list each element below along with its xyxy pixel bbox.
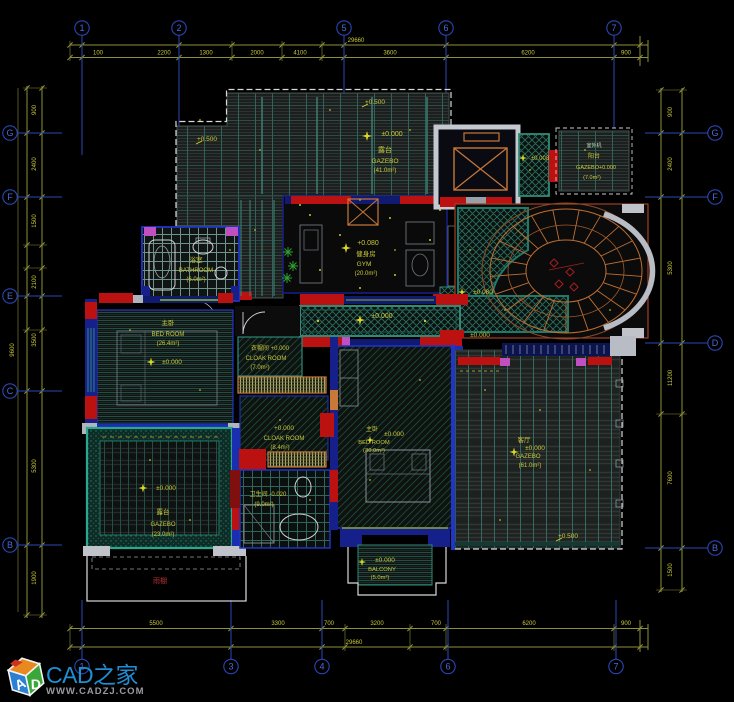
svg-text:CAD之家: CAD之家 [46,662,139,688]
svg-text:BATHROOM: BATHROOM [179,268,213,274]
svg-text:主卧: 主卧 [366,425,378,433]
svg-text:±0.000: ±0.000 [375,557,395,564]
svg-text:WWW.CADZJ.COM: WWW.CADZJ.COM [46,686,145,697]
svg-text:BALCONY: BALCONY [368,567,396,573]
svg-text:GAZEBO: GAZEBO [150,522,175,528]
svg-text:9600: 9600 [10,343,16,357]
svg-text:(7.0m²): (7.0m²) [583,175,601,181]
svg-text:+0.500: +0.500 [558,533,578,540]
svg-text:700: 700 [431,621,442,627]
svg-text:1: 1 [79,23,84,33]
svg-text:(20.0m²): (20.0m²) [355,271,378,277]
svg-text:1500: 1500 [32,214,38,228]
svg-text:CLOAK ROOM: CLOAK ROOM [246,356,287,362]
svg-text:7: 7 [613,662,618,672]
svg-text:(30.0m²): (30.0m²) [363,448,385,454]
svg-text:G: G [6,128,13,138]
svg-text:±0.000: ±0.000 [156,485,176,492]
svg-text:F: F [712,192,718,202]
svg-text:+0.000: +0.000 [274,425,294,432]
svg-text:100: 100 [93,51,104,57]
svg-text:G: G [711,128,718,138]
svg-text:2000: 2000 [250,51,264,57]
svg-text:±0.008: ±0.008 [531,156,550,162]
svg-text:±0.000: ±0.000 [525,445,545,452]
svg-text:29660: 29660 [346,640,363,646]
svg-text:D: D [712,338,719,348]
svg-text:BED ROOM: BED ROOM [152,332,185,338]
svg-text:900: 900 [621,621,632,627]
svg-text:(23.0m²): (23.0m²) [152,532,175,538]
svg-text:(8.4m²): (8.4m²) [270,445,289,451]
svg-text:1500: 1500 [668,563,674,577]
svg-text:900: 900 [668,106,674,117]
svg-text:(41.0m²): (41.0m²) [374,168,397,174]
svg-text:GAZEBO: GAZEBO [515,454,540,460]
svg-text:7: 7 [611,23,616,33]
svg-text:客厅: 客厅 [518,435,532,444]
svg-text:900: 900 [621,51,632,57]
svg-text:D: D [31,676,42,692]
svg-text:5: 5 [341,23,346,33]
svg-text:(61.0m²): (61.0m²) [519,463,542,469]
svg-text:5300: 5300 [668,261,674,275]
svg-text:3300: 3300 [271,621,285,627]
svg-text:3600: 3600 [383,51,397,57]
svg-text:1300: 1300 [199,51,213,57]
svg-text:(7.0m²): (7.0m²) [250,365,269,371]
svg-text:4: 4 [319,662,324,672]
svg-text:(5.0m²): (5.0m²) [371,575,390,581]
svg-text:卫生间 -0.020: 卫生间 -0.020 [250,490,287,498]
svg-text:3200: 3200 [370,621,384,627]
svg-text:GAZEBO+0.000: GAZEBO+0.000 [576,165,616,171]
svg-text:700: 700 [324,621,335,627]
svg-text:2200: 2200 [157,51,171,57]
svg-text:2100: 2100 [32,275,38,289]
svg-text:5300: 5300 [32,459,38,473]
svg-text:露台: 露台 [157,507,170,516]
svg-text:阳台: 阳台 [588,152,600,160]
svg-text:B: B [712,543,718,553]
svg-text:C: C [7,386,14,396]
svg-text:(6.0m²): (6.0m²) [186,277,205,283]
svg-text:室外机: 室外机 [586,142,601,149]
svg-text:29660: 29660 [348,38,365,44]
svg-text:GYM: GYM [357,261,372,268]
svg-text:7600: 7600 [668,471,674,485]
svg-text:±0.000: ±0.000 [162,359,182,366]
svg-text:2: 2 [176,23,181,33]
svg-text:±0.080: ±0.080 [473,289,493,296]
svg-text:(9.0m²): (9.0m²) [254,502,273,508]
svg-text:主卧: 主卧 [162,318,176,327]
svg-text:+0.080: +0.080 [357,240,379,247]
svg-text:6: 6 [445,662,450,672]
svg-text:F: F [7,192,13,202]
svg-text:6200: 6200 [522,621,536,627]
svg-text:6200: 6200 [521,51,535,57]
svg-text:浴室: 浴室 [190,255,204,264]
svg-text:CLOAK ROOM: CLOAK ROOM [264,436,305,442]
svg-text:11200: 11200 [668,369,674,386]
svg-text:衣帽间 +0.000: 衣帽间 +0.000 [251,344,290,352]
svg-text:B: B [7,540,13,550]
svg-text:6: 6 [443,23,448,33]
svg-text:露台: 露台 [378,145,392,154]
svg-text:GAZEBO: GAZEBO [371,158,398,165]
svg-text:1900: 1900 [32,571,38,585]
svg-text:3: 3 [228,662,233,672]
svg-text:900: 900 [32,104,38,115]
svg-text:3500: 3500 [32,333,38,347]
svg-text:2400: 2400 [668,157,674,171]
svg-text:健身房: 健身房 [356,249,376,258]
svg-text:4100: 4100 [293,51,307,57]
svg-text:±0.000: ±0.000 [384,431,404,438]
svg-text:5500: 5500 [149,621,163,627]
svg-text:+0.500: +0.500 [365,99,385,106]
svg-text:E: E [7,291,13,301]
svg-text:雨棚: 雨棚 [153,576,167,585]
svg-text:2400: 2400 [32,157,38,171]
svg-text:±0.000: ±0.000 [470,332,490,339]
svg-text:±0.000: ±0.000 [381,131,402,138]
svg-text:BED ROOM: BED ROOM [358,440,390,446]
svg-text:(26.4m²): (26.4m²) [157,341,180,347]
svg-text:±0.000: ±0.000 [371,313,392,320]
